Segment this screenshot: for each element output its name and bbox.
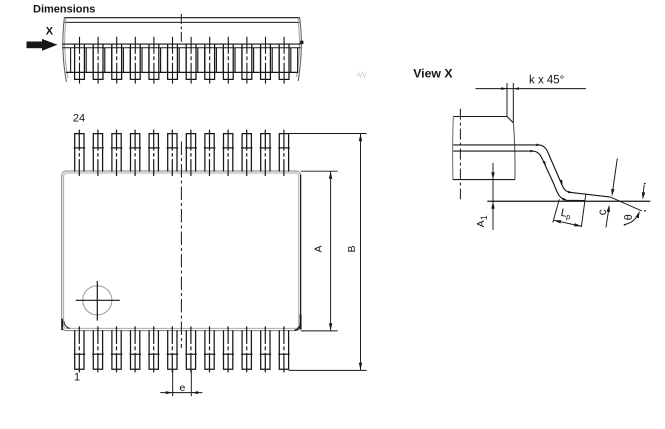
- svg-text:B: B: [346, 245, 358, 252]
- svg-text:A: A: [313, 245, 325, 252]
- svg-text:Dimensions: Dimensions: [33, 4, 95, 16]
- svg-text:c: c: [595, 209, 609, 215]
- svg-text:X: X: [46, 26, 54, 38]
- svg-text:e: e: [179, 382, 185, 394]
- svg-text:1: 1: [74, 371, 80, 383]
- svg-text:View X: View X: [413, 67, 453, 81]
- svg-text:k x 45°: k x 45°: [529, 74, 564, 86]
- svg-text:24: 24: [73, 113, 85, 125]
- svg-text:θ: θ: [623, 214, 635, 220]
